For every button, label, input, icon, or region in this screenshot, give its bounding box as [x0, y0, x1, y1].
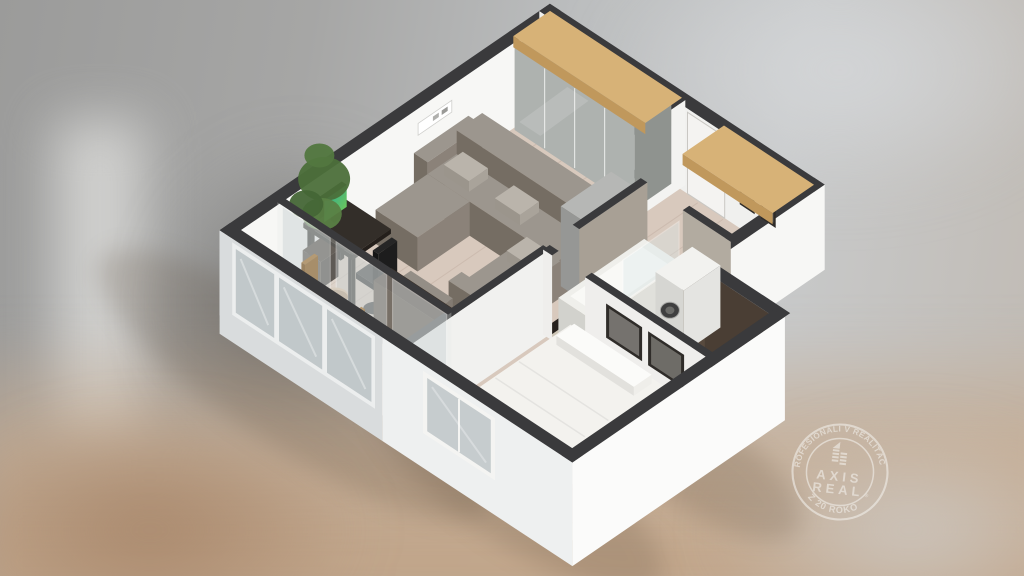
watermark-badge: PROFESIONÁLI V REALITÁCH UŽ 20 ROKOV AXI… [740, 372, 940, 572]
building-icon [831, 441, 848, 465]
screenshot-root: PROFESIONÁLI V REALITÁCH UŽ 20 ROKOV AXI… [0, 0, 1024, 576]
badge-registered-mark: ® [864, 492, 869, 499]
